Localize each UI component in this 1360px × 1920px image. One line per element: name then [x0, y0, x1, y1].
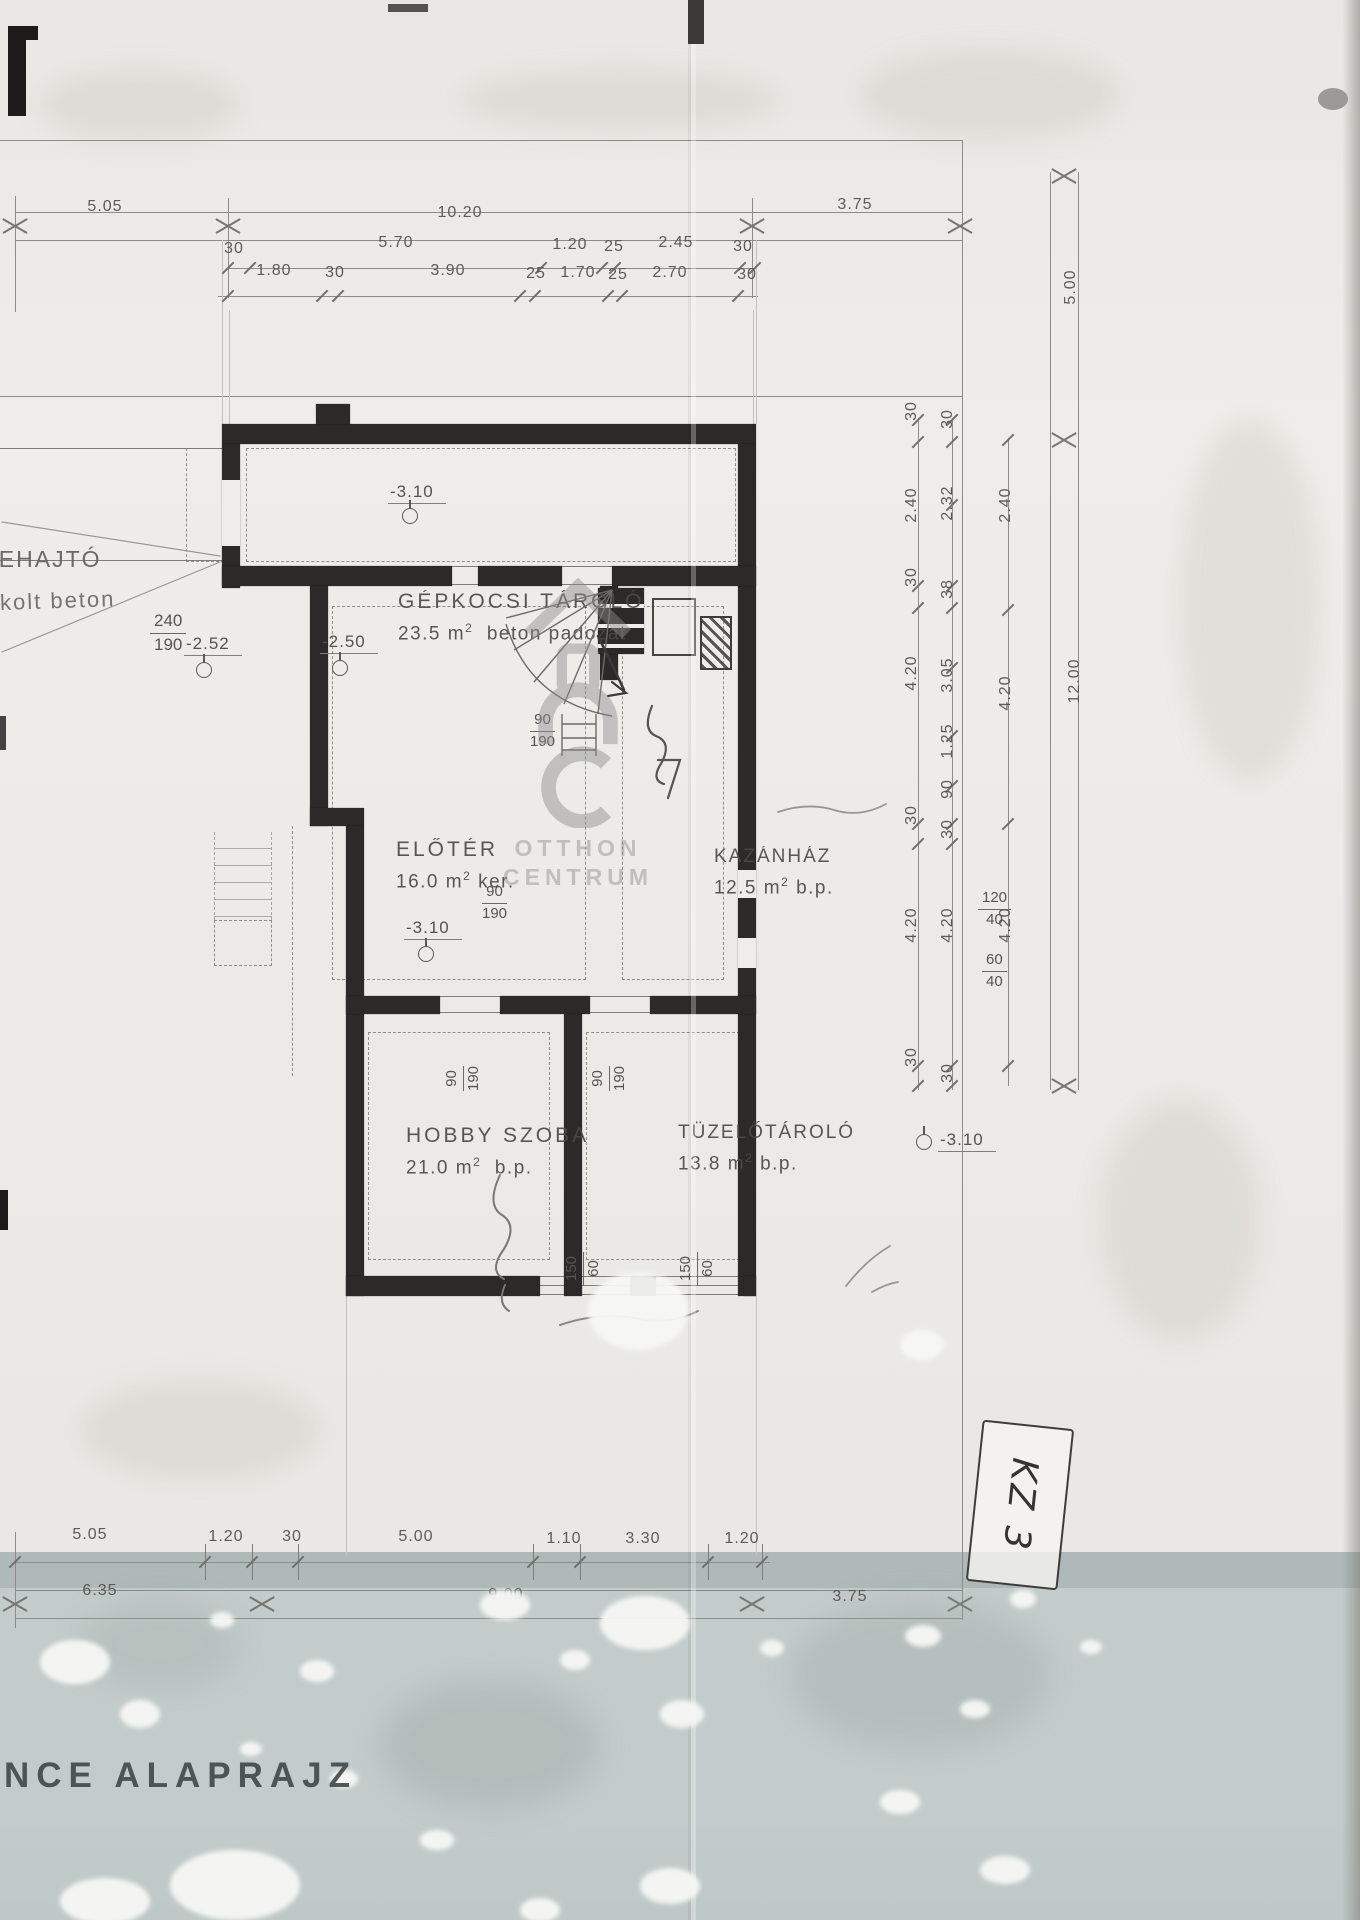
- white-spot: [420, 1830, 454, 1850]
- dim-label-top-row2-3: 25: [594, 238, 634, 256]
- otthon-centrum-logo-icon: [498, 578, 658, 828]
- dim-label-right-col2-1: 2.32: [939, 475, 957, 531]
- white-spot: [60, 1878, 150, 1920]
- white-spot: [520, 1898, 560, 1920]
- dim-label-bottom-row1-4: 1.10: [536, 1530, 592, 1548]
- dim-label-bottom-row2-2: 3.75: [802, 1588, 898, 1606]
- white-spot: [588, 1272, 688, 1350]
- dim-label-bottom-row1-0: 5.05: [46, 1526, 134, 1544]
- dim-label-top-row2-4: 2.45: [636, 234, 716, 252]
- scan-speck: [1318, 88, 1348, 110]
- white-spot: [480, 1590, 530, 1620]
- scan-fold-mark: [688, 0, 704, 44]
- white-spot: [900, 1330, 944, 1360]
- dim-label-top-row3-0: 1.80: [236, 262, 312, 280]
- white-spot: [640, 1868, 700, 1904]
- dim-label-right-col2-0: 30: [939, 391, 957, 447]
- drawing-title: NCE ALAPRAJZ: [4, 1756, 357, 1796]
- dim-label-right-col3-1: 4.20: [997, 665, 1015, 721]
- watermark-line1: OTTHON: [488, 835, 668, 862]
- scan-edge-mark: [388, 4, 428, 12]
- dim-label-right-col2-6: 30: [939, 801, 957, 857]
- dim-label-right-col2-2: 38: [939, 561, 957, 617]
- dim-label-bottom-row2-0: 6.35: [56, 1582, 144, 1600]
- dim-label-right-col1-5: 4.20: [903, 897, 921, 953]
- scanned-floorplan-sheet: LEHAJTÓ kolt beton 240 190 -3.10 -2.52 -…: [0, 0, 1360, 1920]
- dim-label-right-col2-7: 4.20: [939, 897, 957, 953]
- dim-label-bottom-row1-3: 5.00: [376, 1528, 456, 1546]
- scan-edge-shadow: [1342, 0, 1360, 1920]
- dim-label-right-col1-3: 4.20: [903, 645, 921, 701]
- white-spot: [560, 1650, 590, 1670]
- white-spot: [40, 1640, 110, 1684]
- dim-label-top-row3-5: 25: [598, 266, 638, 284]
- stamp-text: KZ 3: [995, 1456, 1046, 1554]
- scan-edge-mark: [0, 1190, 8, 1230]
- paper-fold-highlight: [691, 0, 696, 1920]
- dim-label-top-row3-2: 3.90: [408, 262, 488, 280]
- handwritten-stamp-box: KZ 3: [966, 1420, 1074, 1591]
- dim-label-top-row1-1: 10.20: [400, 204, 520, 222]
- dim-label-bottom-row1-6: 1.20: [712, 1530, 772, 1548]
- white-spot: [905, 1625, 941, 1647]
- white-spot: [1010, 1590, 1036, 1608]
- white-spot: [880, 1790, 920, 1814]
- white-spot: [660, 1700, 704, 1728]
- white-spot: [170, 1850, 300, 1920]
- dim-label-top-row3-7: 30: [722, 266, 772, 284]
- dim-label-right-col1-1: 2.40: [903, 477, 921, 533]
- dim-label-right-col1-4: 30: [903, 787, 921, 843]
- scan-edge-mark: [0, 716, 6, 750]
- dim-label-top-row2-1: 5.70: [356, 234, 436, 252]
- white-spot: [600, 1596, 690, 1650]
- white-spot: [300, 1660, 334, 1682]
- white-spot: [120, 1700, 160, 1728]
- dim-label-bottom-row1-2: 30: [270, 1528, 314, 1546]
- dim-label-top-row1-0: 5.05: [60, 198, 150, 216]
- dim-label-right-col3-2: 4.20: [997, 897, 1015, 953]
- white-spot: [1080, 1640, 1102, 1654]
- scan-corner-mark: [8, 26, 38, 40]
- dim-label-right-col2-3: 3.05: [939, 647, 957, 703]
- dim-label-bottom-row1-5: 3.30: [608, 1530, 678, 1548]
- dim-label-right-col1-6: 30: [903, 1029, 921, 1085]
- dim-label-top-row2-0: 30: [214, 240, 254, 258]
- dim-label-right-col1-2: 30: [903, 549, 921, 605]
- dim-label-top-row2-5: 30: [718, 238, 768, 256]
- dim-label-top-row2-2: 1.20: [540, 236, 600, 254]
- white-spot: [980, 1856, 1030, 1884]
- dim-label-right-col1-0: 30: [903, 383, 921, 439]
- dim-label-bottom-row1-1: 1.20: [196, 1528, 256, 1546]
- dim-label-top-row3-1: 30: [312, 264, 358, 282]
- dim-label-right-col2-8: 30: [939, 1045, 957, 1101]
- dim-label-right-col3-0: 2.40: [997, 477, 1015, 533]
- white-spot: [760, 1640, 784, 1656]
- white-spot: [960, 1700, 990, 1718]
- watermark-line2: CENTRUM: [488, 864, 668, 891]
- dim-label-top-row1-2: 3.75: [800, 196, 910, 214]
- white-spot: [210, 1612, 234, 1628]
- white-spot: [240, 1742, 262, 1756]
- watermark: OTTHON CENTRUM: [488, 578, 668, 891]
